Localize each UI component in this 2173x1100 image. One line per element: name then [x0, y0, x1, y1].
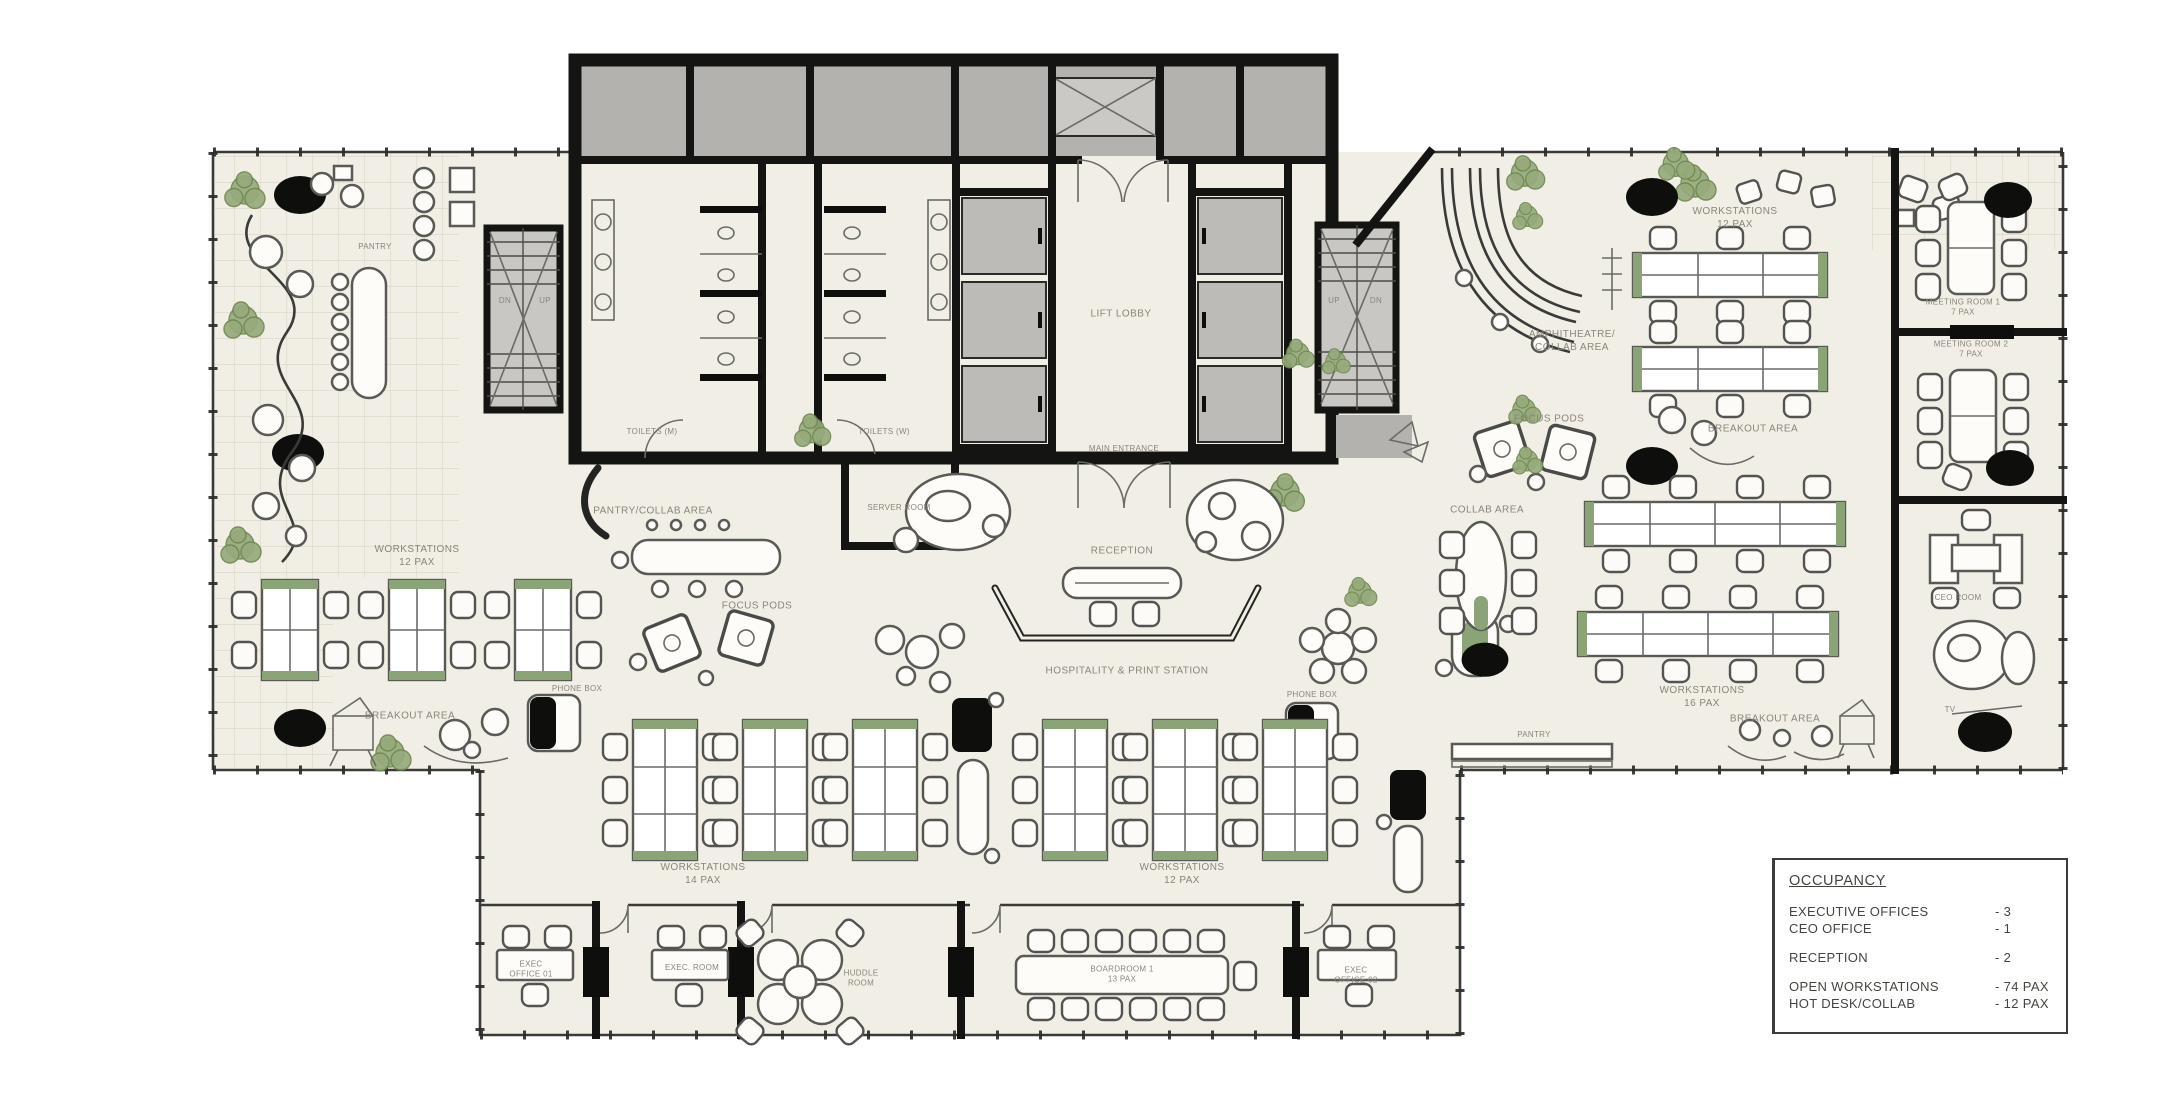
- legend-row: CEO OFFICE- 1: [1789, 920, 2054, 937]
- legend-row: [1789, 937, 2054, 949]
- legend-row: OPEN WORKSTATIONS- 74 PAX: [1789, 978, 2054, 995]
- legend-rows: EXECUTIVE OFFICES- 3 CEO OFFICE- 1 RECEP…: [1789, 903, 2054, 1012]
- legend-row: RECEPTION- 2: [1789, 949, 2054, 966]
- legend-row: HOT DESK/COLLAB- 12 PAX: [1789, 995, 2054, 1012]
- legend-title: OCCUPANCY: [1789, 873, 2054, 889]
- legend-row: [1789, 966, 2054, 978]
- stair-left: [487, 228, 560, 410]
- floor-plan-page: PANTRY WORKSTATIONS 12 PAX BREAKOUT AREA…: [0, 0, 2173, 1100]
- occupancy-legend: OCCUPANCY EXECUTIVE OFFICES- 3 CEO OFFIC…: [1772, 858, 2068, 1034]
- legend-row: EXECUTIVE OFFICES- 3: [1789, 903, 2054, 920]
